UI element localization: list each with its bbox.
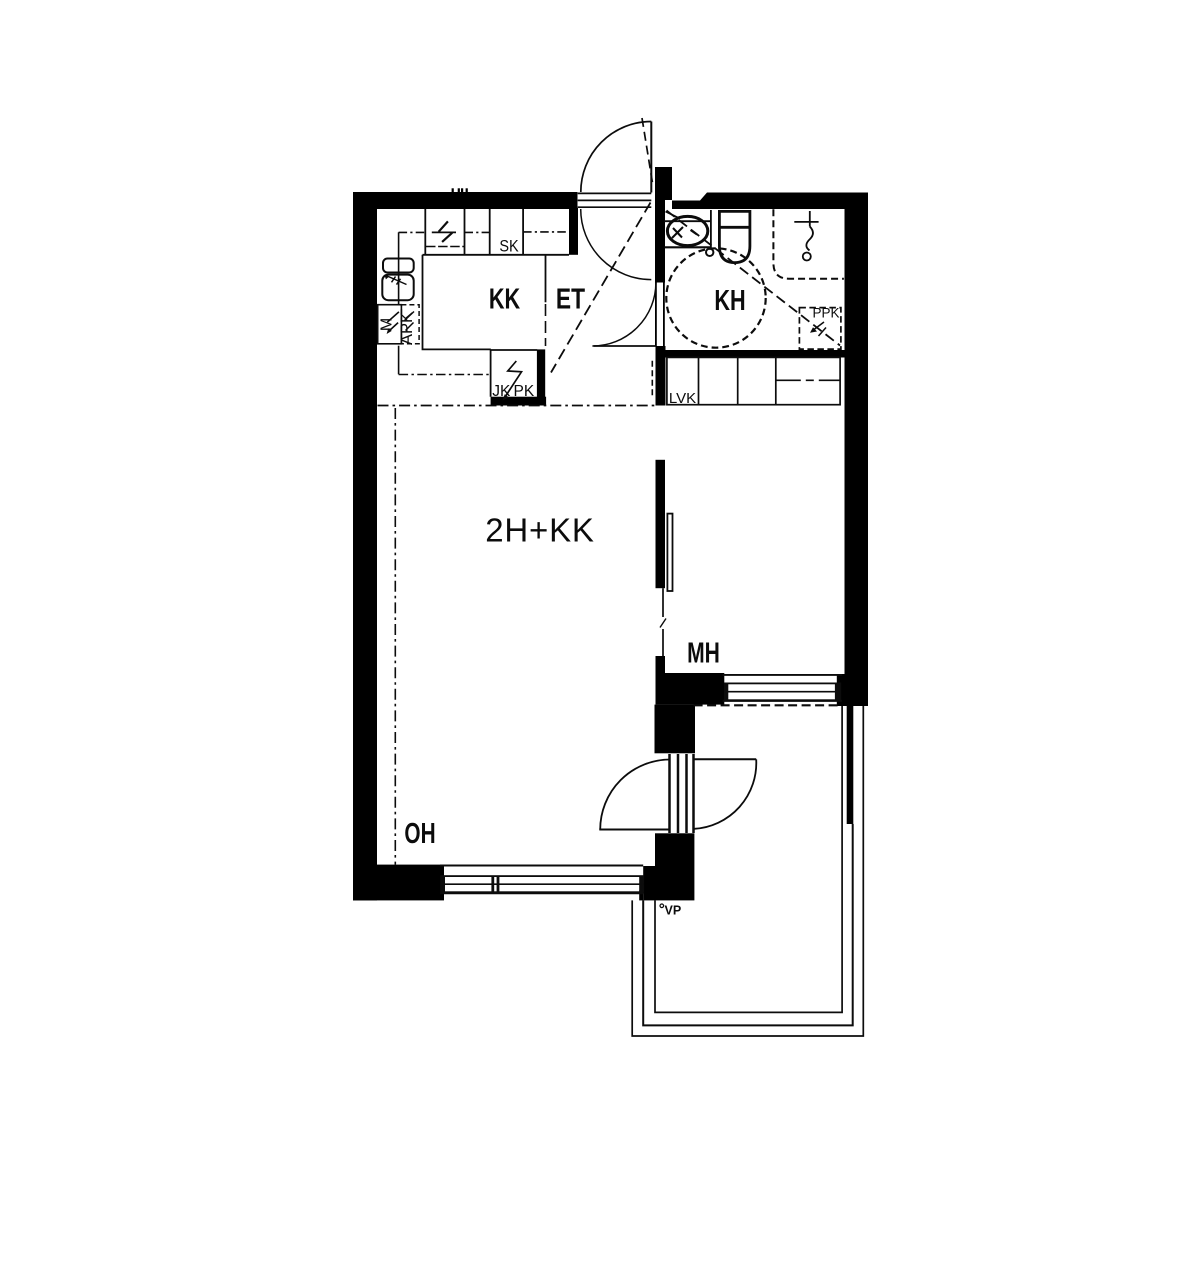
svg-text:SK: SK	[499, 237, 519, 255]
svg-text:MH: MH	[687, 637, 720, 669]
svg-text:ET: ET	[556, 284, 585, 315]
svg-text:OH: OH	[404, 818, 435, 850]
svg-text:KK: KK	[489, 284, 521, 316]
svg-text:VP: VP	[665, 904, 682, 918]
svg-text:PK: PK	[514, 383, 535, 400]
svg-text:LVK: LVK	[669, 390, 696, 407]
svg-text:PPK: PPK	[812, 306, 839, 321]
svg-text:KH: KH	[714, 285, 745, 317]
svg-text:JK: JK	[492, 383, 511, 400]
svg-text:M: M	[379, 318, 396, 331]
svg-text:2H+KK: 2H+KK	[485, 512, 594, 549]
